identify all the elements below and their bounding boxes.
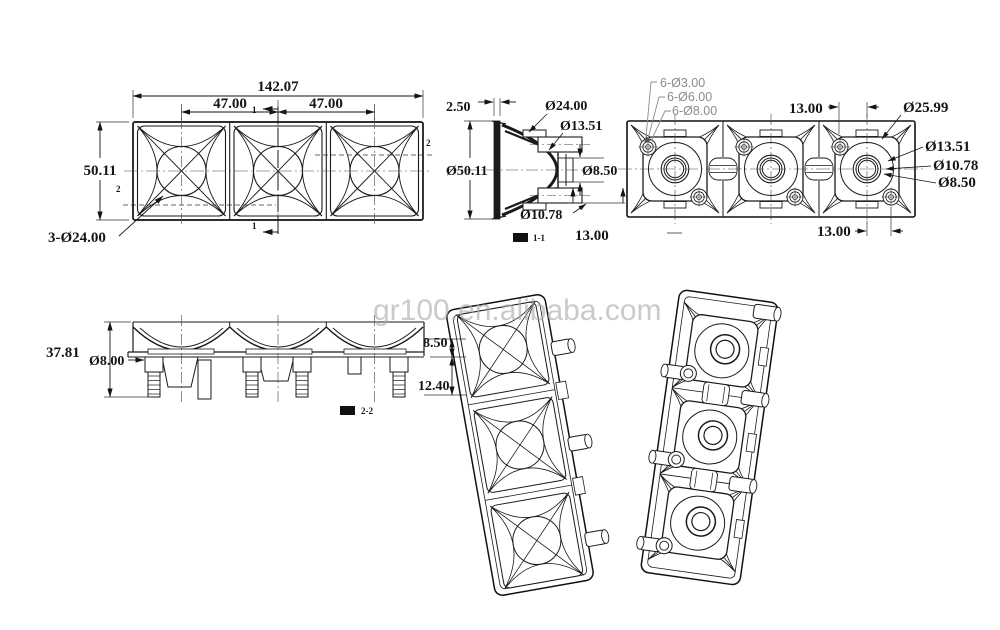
section-label-block-2 xyxy=(340,406,355,415)
side-view-2-2: 37.81 Ø8.00 8.50 12.40 2-2 xyxy=(46,315,466,416)
drawing-canvas: gr100.en.alibaba.com xyxy=(0,0,1000,630)
engineering-drawing: 1 1 2 2 142.07 47.00 47.00 5 xyxy=(0,0,1000,630)
iso-back-view xyxy=(633,288,783,586)
dim-section-outer-ring: Ø24.00 xyxy=(545,99,587,114)
dim-back-offset-bottom: 13.00 xyxy=(817,224,851,240)
dim-side-step-lower: 12.40 xyxy=(418,379,450,394)
dim-side-pin-dia: Ø8.00 xyxy=(89,354,124,369)
section-label-1-1: 1-1 xyxy=(533,233,545,243)
iso-front-view xyxy=(446,290,616,597)
dim-front-total-width: 142.07 xyxy=(257,79,299,95)
section-1-marker-top: 1 xyxy=(252,105,257,115)
dim-front-height: 50.11 xyxy=(84,163,117,179)
dim-back-ring-13: Ø13.51 xyxy=(925,139,970,155)
front-view: 1 1 2 2 142.07 47.00 47.00 5 xyxy=(48,79,432,246)
section-label-block xyxy=(513,233,528,242)
dim-back-ring-10: Ø10.78 xyxy=(933,158,978,174)
section-2-marker-right: 2 xyxy=(426,138,431,148)
dim-section-wall: 2.50 xyxy=(446,100,471,115)
callout-holes-6mm: 6-Ø6.00 xyxy=(667,90,712,104)
dim-back-ring-8: Ø8.50 xyxy=(938,175,976,191)
section-view-1-1: 2.50 Ø24.00 Ø13.51 Ø50.11 Ø8.50 Ø10.78 1 xyxy=(446,98,617,243)
dim-section-inner-ring: Ø13.51 xyxy=(560,119,602,134)
section-2-marker-left: 2 xyxy=(116,184,121,194)
dim-section-bore: Ø8.50 xyxy=(582,164,617,179)
callout-holes-8mm: 6-Ø8.00 xyxy=(672,104,717,118)
dim-back-ring-outer: Ø25.99 xyxy=(903,100,948,116)
dim-side-height: 37.81 xyxy=(46,345,80,361)
dim-front-pitch-left: 47.00 xyxy=(213,96,247,112)
dim-front-pitch-right: 47.00 xyxy=(309,96,343,112)
section-1-marker-bottom: 1 xyxy=(252,221,257,231)
dim-front-lens-circles: 3-Ø24.00 xyxy=(48,230,106,246)
dim-side-step-upper: 8.50 xyxy=(423,336,448,351)
section-label-2-2: 2-2 xyxy=(361,406,373,416)
back-view: 6-Ø3.00 6-Ø6.00 6-Ø8.00 13.00 Ø25.99 Ø13… xyxy=(568,76,978,244)
dim-section-pin-hole: Ø10.78 xyxy=(520,208,562,223)
callout-holes-3mm: 6-Ø3.00 xyxy=(660,76,705,90)
dim-back-offset-top: 13.00 xyxy=(789,101,823,117)
dim-back-offset-left: 13.00 xyxy=(575,228,609,244)
dim-section-overall: Ø50.11 xyxy=(446,164,488,179)
